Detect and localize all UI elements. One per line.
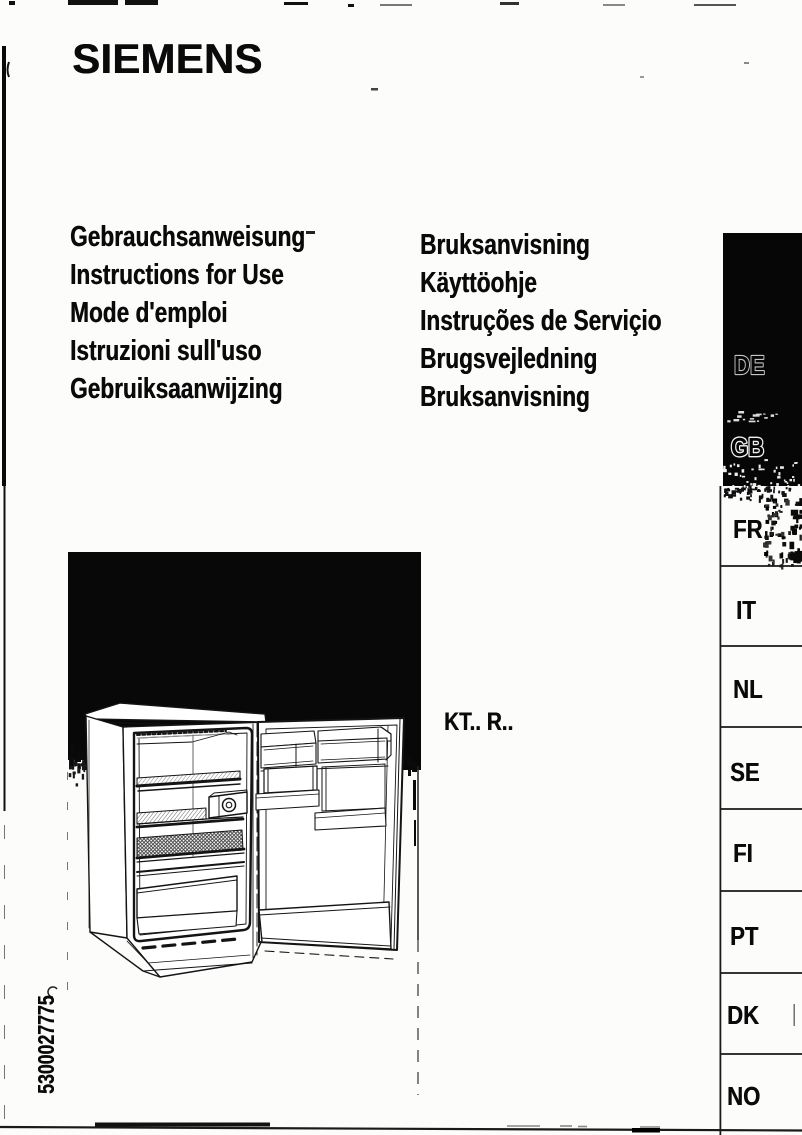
svg-text:DE: DE	[734, 351, 765, 380]
svg-text:GB: GB	[731, 433, 764, 462]
